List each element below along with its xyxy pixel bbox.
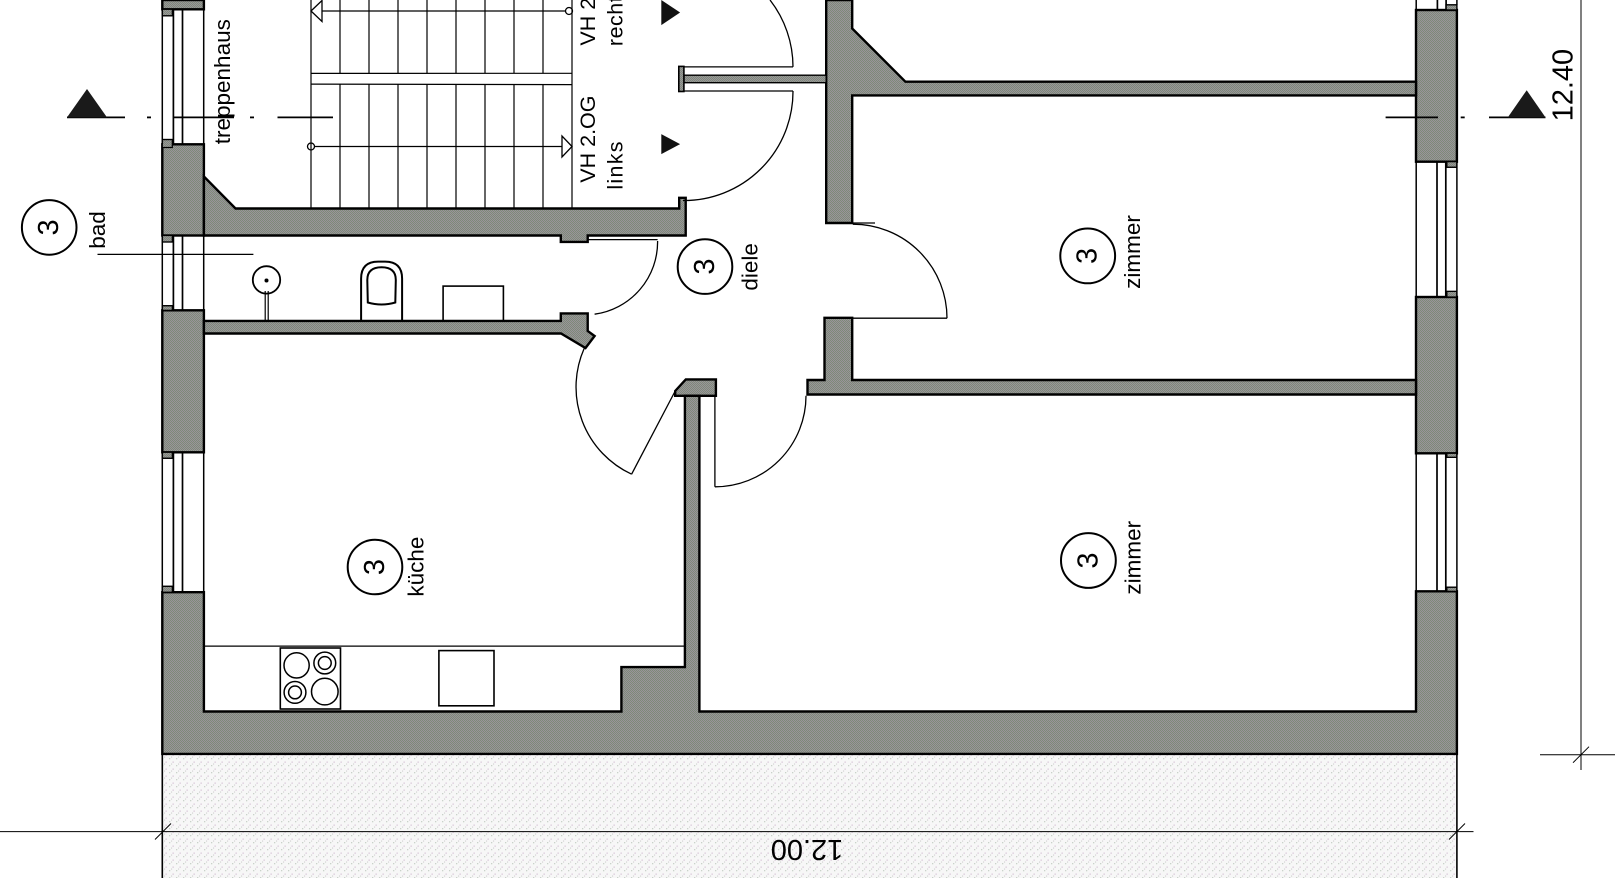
- svg-text:3: 3: [1072, 552, 1104, 568]
- svg-text:3: 3: [689, 259, 721, 275]
- svg-text:VH 2.OG: VH 2.OG: [576, 95, 600, 182]
- svg-text:diele: diele: [738, 243, 763, 291]
- svg-text:treppenhaus: treppenhaus: [210, 19, 235, 144]
- svg-text:VH 2.OG: VH 2.OG: [576, 0, 600, 46]
- svg-text:12.40: 12.40: [1548, 49, 1580, 122]
- svg-text:3: 3: [33, 219, 65, 235]
- svg-text:bad: bad: [85, 211, 110, 249]
- svg-text:links: links: [603, 140, 627, 190]
- svg-text:12.00: 12.00: [771, 833, 844, 865]
- svg-text:3: 3: [1072, 248, 1104, 264]
- svg-text:küche: küche: [404, 537, 429, 597]
- svg-text:zimmer: zimmer: [1120, 215, 1145, 289]
- svg-text:zimmer: zimmer: [1121, 520, 1146, 594]
- svg-text:3: 3: [359, 559, 391, 575]
- svg-text:rechts: rechts: [603, 0, 627, 46]
